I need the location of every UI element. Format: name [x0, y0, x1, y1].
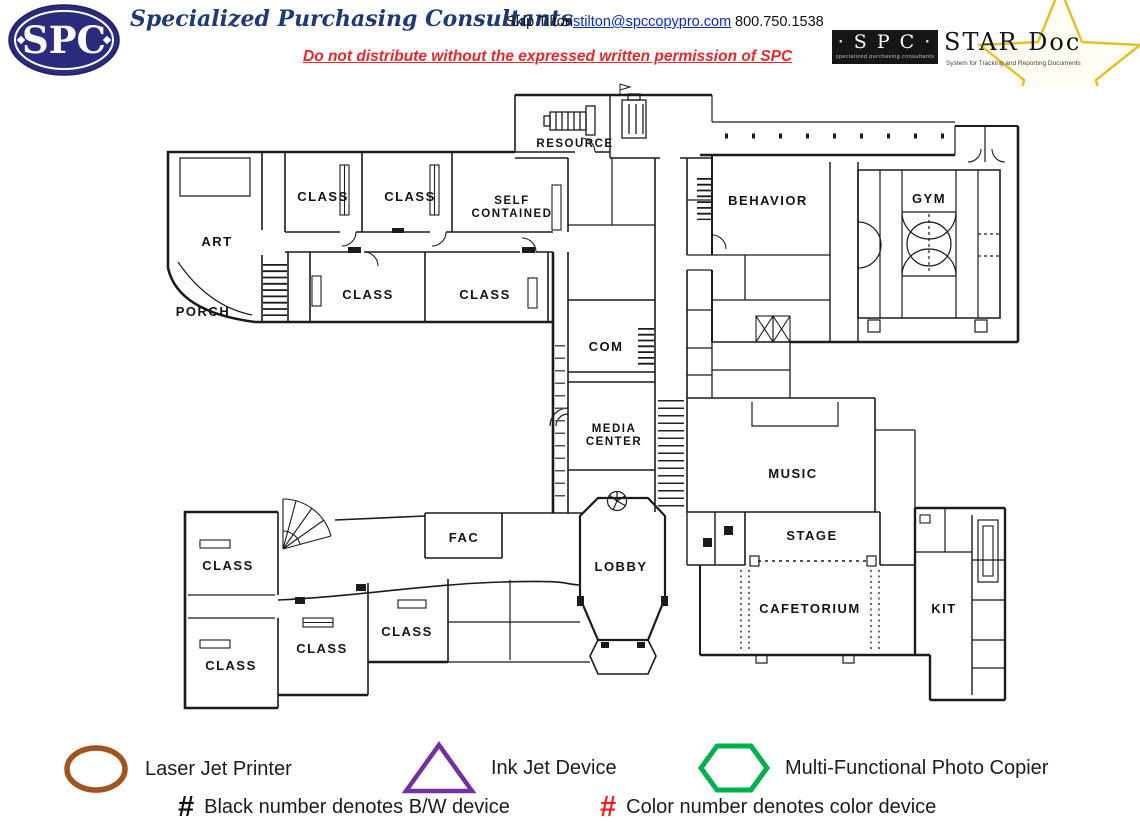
legend-item-copier: Multi-Functional Photo Copier — [698, 742, 1048, 794]
door-marker — [661, 596, 668, 606]
room-label-contained: CONTAINED — [471, 208, 552, 220]
legend-label-laserjet: Laser Jet Printer — [145, 758, 292, 781]
copier-hexagon-icon — [698, 742, 770, 794]
page: RESOURCE CLASS CLASS SELF CONTAINED ART … — [0, 0, 1140, 828]
star-doc-spc-text: · S P C · — [832, 31, 938, 54]
door-marker — [637, 642, 645, 648]
resource-equipment-icon — [544, 106, 595, 135]
room-label-center: CENTER — [586, 436, 642, 448]
star-doc-spc-caption: specialized purchasing consultants — [832, 54, 938, 60]
black-hash-symbol: # — [178, 793, 194, 821]
legend-note-color-text: Color number denotes color device — [626, 796, 936, 819]
room-label-class: CLASS — [297, 189, 349, 204]
room-labels: RESOURCE CLASS CLASS SELF CONTAINED ART … — [176, 138, 957, 673]
header: SPC Specialized Purchasing Consultants S… — [0, 0, 1140, 88]
door-arc — [581, 138, 595, 152]
door-arcs — [342, 232, 536, 266]
inkjet-triangle-icon — [402, 740, 476, 796]
door-marker — [703, 538, 712, 547]
porch-inner-curve — [178, 262, 252, 315]
legend-note-color: # Color number denotes color device — [600, 793, 936, 821]
spc-logo-text: SPC — [22, 18, 106, 62]
lobby-walls — [577, 492, 668, 675]
room-label-media: MEDIA — [592, 423, 637, 435]
bottom-left-wing-walls — [185, 499, 590, 708]
laserjet-ellipse-icon — [62, 744, 130, 794]
legend-label-inkjet: Ink Jet Device — [491, 757, 617, 780]
porch-outer-curve — [168, 268, 255, 322]
right-wing-walls — [687, 95, 1018, 342]
music-block-walls — [687, 342, 915, 512]
floor-plan: RESOURCE CLASS CLASS SELF CONTAINED ART … — [0, 0, 1140, 828]
central-block-details — [544, 94, 671, 510]
door-marker — [601, 642, 609, 648]
legend-label-copier: Multi-Functional Photo Copier — [785, 757, 1048, 780]
room-label-cafetorium: CAFETORIUM — [759, 601, 860, 616]
door-marker — [577, 596, 584, 606]
top-left-wing-walls — [168, 95, 568, 322]
stage-cafetorium-walls — [687, 512, 915, 663]
room-label-class: CLASS — [381, 624, 433, 639]
music-platform — [752, 402, 838, 426]
room-label-lobby: LOBBY — [595, 559, 648, 574]
room-label-com: COM — [589, 339, 624, 354]
spc-logo: SPC — [6, 3, 122, 77]
vestibule-door-arcs — [968, 149, 1005, 162]
room-label-art: ART — [201, 234, 232, 249]
room-label-gym: GYM — [912, 191, 946, 206]
kitchen-block-walls — [915, 508, 1005, 700]
room-label-self: SELF — [494, 195, 529, 207]
room-label-stage: STAGE — [786, 528, 837, 543]
door-marker — [522, 247, 535, 253]
legend-note-bw: # Black number denotes B/W device — [178, 793, 510, 821]
room-label-behavior: BEHAVIOR — [728, 193, 808, 208]
door-marker — [356, 584, 366, 591]
door-arc — [712, 235, 726, 249]
room-label-class: CLASS — [202, 558, 254, 573]
fan-stair — [283, 499, 331, 549]
star-doc-spc-bar: · S P C · specialized purchasing consult… — [832, 30, 938, 64]
room-label-class: CLASS — [342, 287, 394, 302]
room-label-class: CLASS — [459, 287, 511, 302]
room-label-fac: FAC — [449, 530, 480, 545]
top-left-wing-details — [275, 165, 561, 316]
room-label-class: CLASS — [296, 641, 348, 656]
room-label-kit: KIT — [931, 601, 956, 616]
spiral-stair — [608, 492, 627, 511]
lobby-foyer — [590, 640, 656, 674]
door-marker — [295, 597, 305, 604]
elevator-x-boxes — [756, 316, 790, 342]
curved-corridor-wall — [278, 581, 580, 600]
star-doc-caption: System for Tracking and Reporting Docume… — [946, 60, 1081, 67]
legend-item-laserjet: Laser Jet Printer — [62, 744, 292, 794]
contact-name: Skip Tilton — [506, 14, 573, 30]
contact-phone: 800.750.1538 — [735, 14, 824, 30]
room-label-class: CLASS — [384, 189, 436, 204]
folding-partition-dotted — [741, 570, 879, 650]
resource-equipment-icon-2 — [622, 94, 646, 138]
star-doc-logo: · S P C · specialized purchasing consult… — [820, 0, 1140, 86]
door-marker — [724, 526, 733, 535]
contact-email-link[interactable]: stilton@spccopypro.com — [573, 14, 731, 30]
distribution-notice: Do not distribute without the expressed … — [303, 48, 792, 66]
room-label-resource: RESOURCE — [536, 138, 613, 150]
legend-item-inkjet: Ink Jet Device — [402, 740, 617, 796]
door-marker — [392, 228, 404, 233]
star-doc-title: STAR Doc — [944, 28, 1081, 56]
gym-court — [858, 170, 1000, 332]
room-label-porch: PORCH — [176, 304, 230, 319]
media-entry-arcs — [550, 408, 568, 426]
red-hash-symbol: # — [600, 793, 616, 821]
central-block-walls — [515, 84, 712, 513]
room-label-class: CLASS — [205, 658, 257, 673]
room-label-music: MUSIC — [768, 466, 817, 481]
legend-note-bw-text: Black number denotes B/W device — [204, 796, 510, 819]
door-marker — [348, 247, 361, 253]
